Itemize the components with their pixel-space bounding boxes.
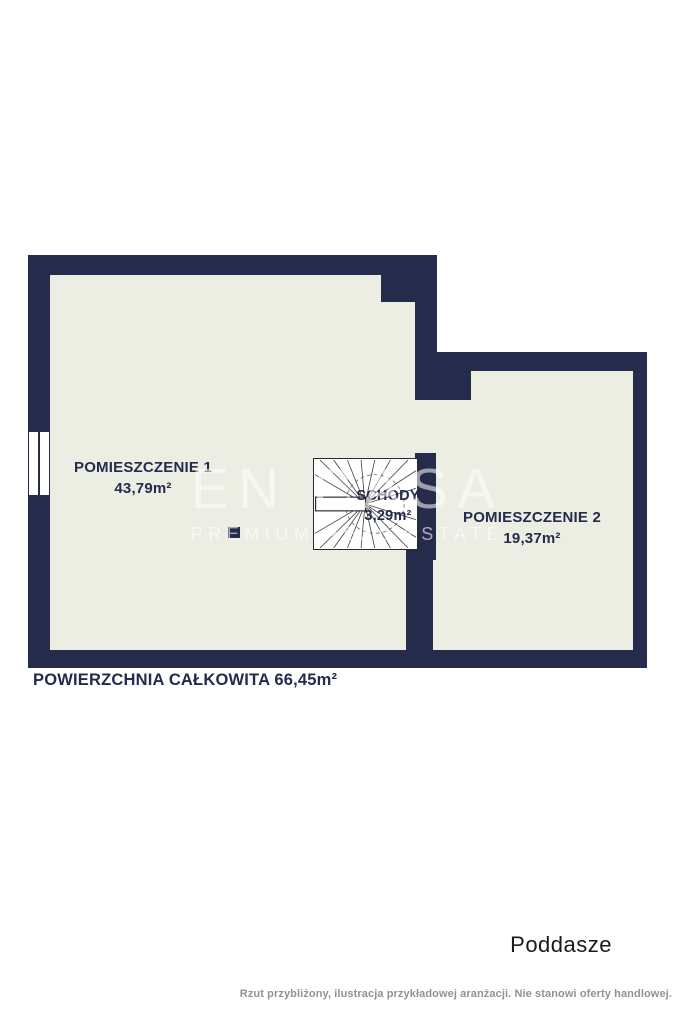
room1-area: 43,79m²	[33, 478, 253, 499]
total-area-label: POWIERZCHNIA CAŁKOWITA 66,45m²	[33, 671, 337, 690]
chimney-block	[228, 527, 240, 538]
wall-left-upper	[28, 255, 50, 431]
room2-label: POMIESZCZENIE 2 19,37m²	[422, 507, 642, 549]
stairs-area: 3,29m²	[328, 506, 448, 526]
wall-top	[28, 255, 437, 275]
floorplan-page: POMIESZCZENIE 1 43,79m² POMIESZCZENIE 2 …	[0, 0, 683, 1024]
doorway-passage-floor	[415, 400, 437, 453]
wall-bottom	[28, 650, 647, 668]
disclaimer-text: Rzut przybliżony, ilustracja przykładowe…	[240, 988, 672, 1000]
stairs-name: SCHODY	[328, 486, 448, 506]
room2-area: 19,37m²	[422, 528, 642, 549]
room2-name: POMIESZCZENIE 2	[422, 507, 642, 528]
wall-mid-column	[415, 275, 437, 400]
wall-room2-pillar	[437, 371, 471, 400]
room1-label: POMIESZCZENIE 1 43,79m²	[33, 457, 253, 499]
room1-name: POMIESZCZENIE 1	[33, 457, 253, 478]
floor-name-label: Poddasze	[510, 932, 612, 958]
wall-lower-mid	[406, 550, 433, 655]
stairs-label: SCHODY 3,29m²	[328, 486, 448, 527]
wall-left-lower	[28, 496, 50, 668]
wall-room2-top	[437, 352, 647, 371]
